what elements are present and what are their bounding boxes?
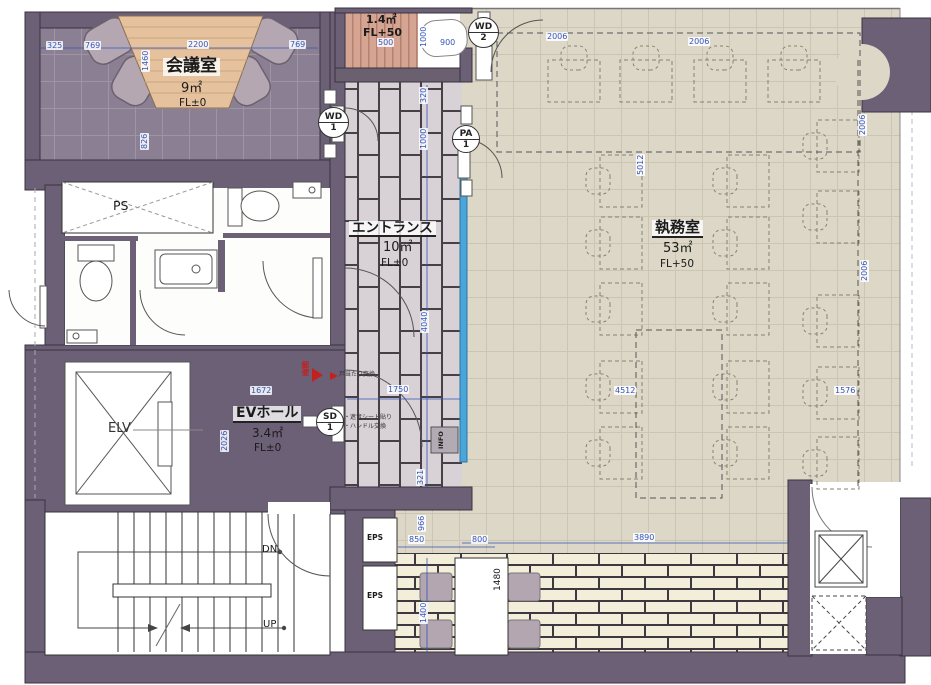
storage-area: 1.4㎡ (366, 14, 397, 26)
dim-label: 1750 (387, 385, 409, 394)
dim-label: 1400 (419, 602, 428, 624)
info-label: INFO (438, 431, 445, 449)
dim-label: 769 (84, 41, 101, 50)
meeting-room-level: FL±0 (179, 98, 206, 109)
dim-label: 1480 (494, 567, 503, 592)
entrance-level: FL±0 (381, 258, 408, 269)
ps-label: PS (113, 199, 128, 212)
office-area: 53㎡ (663, 242, 693, 256)
eps1-label: EPS (367, 534, 383, 542)
ps-shaft (62, 182, 213, 233)
door-tag-wd2-code: WD (469, 22, 498, 32)
dim-label: 5012 (636, 154, 645, 176)
dim-label: 826 (140, 133, 149, 150)
meeting-room-name: 会議室 (163, 58, 220, 76)
dim-label: 2006 (860, 260, 869, 282)
dim-label: 2200 (187, 40, 209, 49)
note-soundproof: ・遮音シート貼り (344, 414, 392, 422)
dim-label: 320 (419, 87, 428, 104)
office-name: 執務室 (652, 220, 703, 238)
dim-label: 1000 (419, 26, 428, 48)
door-tag-wd2-num: 2 (469, 32, 498, 43)
dim-label: 800 (471, 535, 488, 544)
column-notch (834, 44, 890, 100)
floor-plan: 会議室 9㎡ FL±0 1.4㎡ FL+50 エントランス 10㎡ FL±0 執… (0, 0, 931, 685)
dim-label: 1576 (834, 386, 856, 395)
dim-label: 1000 (419, 128, 428, 150)
door-tag-sd1: SD 1 (316, 408, 344, 436)
dim-label: 4512 (614, 386, 636, 395)
door-tag-sd1-num: 1 (317, 422, 343, 433)
door-tag-pa1-num: 1 (453, 139, 479, 150)
floor-plan-graphics (0, 0, 931, 685)
ev-hall-name: EVホール (233, 406, 301, 423)
dim-label: 900 (439, 38, 456, 47)
dim-label: 500 (377, 38, 394, 47)
stairs-dn-label: DN (262, 545, 277, 556)
door-tag-wd1-num: 1 (319, 122, 348, 133)
meeting-room-area: 9㎡ (181, 82, 202, 96)
note-handle: ・ハンドル交換 (344, 423, 386, 431)
dim-label: 325 (46, 41, 63, 50)
dim-label: 2006 (546, 32, 568, 41)
dim-label: 3890 (633, 533, 655, 542)
dim-label: 2026 (220, 430, 229, 452)
dim-label: 2006 (688, 37, 710, 46)
entrance-area: 10㎡ (383, 241, 413, 255)
elevator-label: ELV (108, 422, 131, 436)
dim-label: 321 (416, 469, 425, 486)
dim-label: 1672 (250, 386, 272, 395)
door-tag-pa1: PA 1 (452, 125, 480, 153)
door-tag-wd2: WD 2 (468, 17, 499, 48)
dim-label: 2006 (858, 114, 867, 136)
door-tag-pa1-code: PA (453, 129, 479, 139)
ev-hall-area: 3.4㎡ (252, 427, 283, 440)
dim-label: 1460 (141, 50, 150, 72)
stairs-up-label: UP (263, 620, 276, 631)
dim-label: 966 (417, 515, 426, 532)
door-tag-wd1-code: WD (319, 112, 348, 122)
dim-label: 4040 (420, 311, 429, 333)
door-tag-sd1-code: SD (317, 412, 343, 422)
new-partition (460, 170, 467, 462)
entrance-name: エントランス (349, 221, 436, 237)
ev-hall-level: FL±0 (254, 443, 281, 454)
office-level: FL+50 (660, 259, 694, 270)
dim-label: 850 (408, 535, 425, 544)
storage-level: FL+50 (363, 27, 402, 39)
dim-label: 769 (289, 40, 306, 49)
mail-label: 郵便 (301, 361, 309, 376)
eps2-label: EPS (367, 592, 383, 600)
note-doorstop: 戸当たり交換 (339, 371, 375, 379)
door-tag-wd1: WD 1 (318, 107, 349, 138)
